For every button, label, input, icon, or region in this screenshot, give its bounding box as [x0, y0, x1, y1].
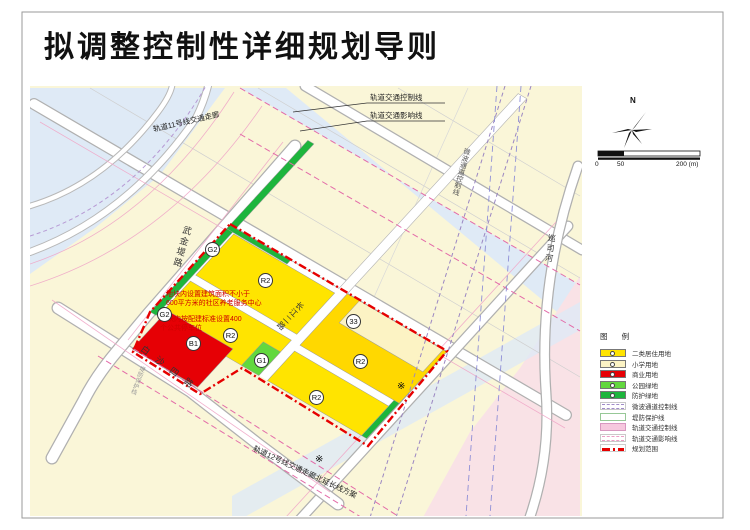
- dike-swatch: [600, 413, 626, 421]
- scale-tick-0: 0: [595, 161, 599, 168]
- parcel-label-r2a: R2: [258, 273, 273, 288]
- legend-item-dike: 堤防保护线: [600, 413, 730, 421]
- legend-item-park-green: 公园绿地: [600, 381, 730, 389]
- rail-influence-swatch: [600, 434, 626, 442]
- parcel-label-g1: G1: [254, 353, 269, 368]
- legend-item-rail-influence: 轨道交通影响线: [600, 434, 730, 442]
- legend-item-commercial: 商业用地: [600, 370, 730, 378]
- legend: 图 例 二类居住用地 小学用地 商业用地 公园绿地 防护绿地 微波通道控制线 堤…: [600, 331, 730, 455]
- north-arrow-icon: [612, 106, 652, 148]
- scale-tick-200: 200 (m): [676, 161, 698, 168]
- north-label: N: [630, 96, 636, 105]
- legend-item-protective-green: 防护绿地: [600, 391, 730, 399]
- legend-item-planning-scope: 规划范围: [600, 444, 730, 452]
- planning-scope-swatch: [600, 444, 626, 452]
- legend-item-microwave: 微波通道控制线: [600, 402, 730, 410]
- rail-control-line-label: 轨道交通控制线: [370, 92, 423, 103]
- scale-tick-50: 50: [617, 161, 624, 168]
- school-swatch: [600, 360, 626, 368]
- commercial-swatch: [600, 370, 626, 378]
- parcel-label-r2c: R2: [353, 354, 368, 369]
- parcel-label-g2a: G2: [205, 242, 220, 257]
- rail-control-swatch: [600, 423, 626, 431]
- protective-green-swatch: [600, 391, 626, 399]
- scale-bar: [598, 151, 700, 160]
- parcel-label-r2b: R2: [223, 328, 238, 343]
- station-marker-icon: ※: [397, 381, 405, 392]
- station-marker-icon: ※: [315, 454, 323, 465]
- parcel-note-1: 地块内设置建筑面积不小于 600平方米的社区养老服务中心: [166, 291, 262, 308]
- legend-title: 图 例: [600, 331, 730, 342]
- microwave-swatch: [600, 402, 626, 410]
- legend-item-primary-school: 小学用地: [600, 360, 730, 368]
- parcel-label-33: 33: [346, 314, 361, 329]
- legend-item-rail-control: 轨道交通控制线: [600, 423, 730, 431]
- rail-influence-line-label: 轨道交通影响线: [370, 110, 423, 121]
- parcel-label-b1: B1: [186, 336, 201, 351]
- parcel-label-g2b: G2: [157, 307, 172, 322]
- legend-item-residential: 二类居住用地: [600, 349, 730, 357]
- page-title: 拟调整控制性详细规划导则: [44, 22, 440, 66]
- park-swatch: [600, 381, 626, 389]
- parcel-label-r2d: R2: [309, 390, 324, 405]
- planning-guideline-sheet: 拟调整控制性详细规划导则 轨道交通控制线 轨道交通影响线 轨道11号线交通走廊 …: [0, 0, 750, 530]
- residential-swatch: [600, 349, 626, 357]
